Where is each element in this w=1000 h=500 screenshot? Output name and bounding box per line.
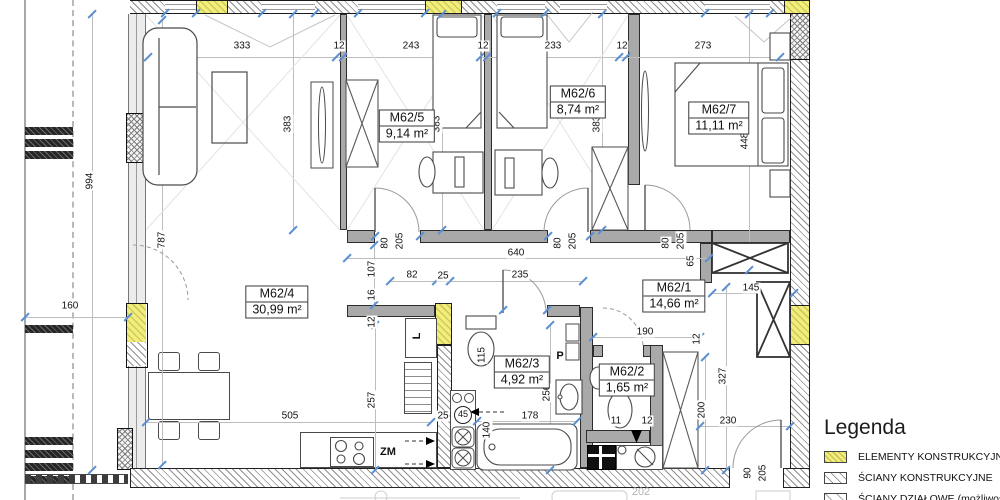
- wall-bath-wc: [580, 307, 593, 468]
- railing-bar: [25, 139, 73, 147]
- window: [358, 1, 425, 13]
- floorplan-canvas: 3331224312233122739947871603833833834488…: [0, 0, 1000, 500]
- dim-label-25: 25: [436, 271, 449, 282]
- stove: [330, 437, 374, 467]
- site-boundary-line: [24, 0, 26, 500]
- wall-bath-top: [547, 305, 580, 317]
- structural-element: [784, 0, 810, 14]
- railing-bar: [25, 437, 73, 445]
- dim-label-205: 205: [676, 232, 687, 251]
- dim-label-45: 45: [454, 406, 472, 424]
- dim-label-994: 994: [85, 172, 96, 191]
- dim-label-25: 25: [436, 411, 449, 422]
- window: [262, 1, 315, 13]
- wall-segment: [315, 1, 358, 13]
- dim-label-233: 233: [544, 41, 563, 52]
- dim-label-12: 12: [640, 416, 653, 427]
- dim-label-115: 115: [477, 346, 488, 364]
- dim-label-90: 90: [743, 466, 754, 479]
- dim-label-12: 12: [615, 41, 628, 52]
- structural-element: [196, 0, 228, 14]
- wall-segment: [127, 342, 146, 366]
- coffee-table: [212, 72, 247, 143]
- dim-label-82: 82: [405, 270, 418, 281]
- dim-label-505: 505: [281, 411, 300, 422]
- room-name: M62/2: [600, 365, 654, 381]
- dim-label-333: 333: [233, 41, 252, 52]
- legend: Legenda ELEMENTY KONSTRUKCYJNEŚCIANY KON…: [824, 416, 1000, 500]
- dim-label-640: 640: [507, 248, 526, 259]
- room-area: 14,66 m²: [643, 297, 704, 312]
- dim-label-12: 12: [476, 41, 489, 52]
- dim-tick: [776, 53, 785, 62]
- legend-swatch-diag2-icon: [824, 493, 847, 500]
- dim-label-235: 235: [511, 270, 530, 281]
- legend-title: Legenda: [824, 416, 1000, 440]
- dimension-line: [347, 258, 709, 259]
- dim-label-P: P: [555, 350, 564, 362]
- dim-label-190: 190: [636, 327, 655, 338]
- dimension-line: [92, 14, 93, 470]
- dim-label-80: 80: [553, 236, 564, 249]
- legend-item: ELEMENTY KONSTRUKCYJNE: [824, 451, 1000, 463]
- legend-swatch-yellow-icon: [824, 451, 847, 463]
- railing-bar: [25, 450, 73, 458]
- dim-label-200: 200: [697, 401, 708, 420]
- room-label-m62-4: M62/430,99 m²: [245, 286, 308, 319]
- dining-table: [148, 372, 230, 420]
- terrace-railing: [25, 474, 128, 484]
- dim-tick: [745, 266, 754, 275]
- dimension-line: [390, 281, 583, 282]
- desk-chair: [419, 157, 435, 187]
- window: [497, 1, 545, 13]
- room-area: 9,14 m²: [380, 127, 434, 142]
- legend-item: ŚCIANY KONSTRUKCYJNE: [824, 472, 1000, 484]
- dim-label-12: 12: [367, 315, 378, 328]
- dim-label-107: 107: [367, 260, 378, 279]
- dimension-line: [700, 426, 790, 427]
- wall-exterior-bottom: [783, 468, 810, 488]
- legend-label: ŚCIANY KONSTRUKCYJNE: [858, 472, 993, 484]
- legend-swatch-diag-icon: [824, 472, 847, 484]
- dim-label-140: 140: [482, 421, 493, 440]
- wall-wc-bottom: [586, 430, 650, 443]
- railing-bar: [25, 325, 73, 333]
- structural-pier: [126, 113, 148, 163]
- wall-exterior-top: [130, 0, 810, 14]
- wall-corridor: [347, 230, 375, 243]
- dim-label-205: 205: [568, 232, 579, 251]
- dim-tick: [427, 418, 436, 427]
- dim-label-65: 65: [686, 254, 697, 267]
- dim-tick: [289, 226, 298, 235]
- room-label-m62-7: M62/711,11 m²: [688, 102, 749, 135]
- room-area: 1,65 m²: [600, 381, 654, 396]
- room-label-m62-3: M62/34,92 m²: [494, 356, 550, 389]
- room-area: 8,74 m²: [551, 103, 605, 118]
- dim-label-ZM: ZM: [379, 446, 397, 458]
- dim-label-383: 383: [283, 115, 294, 134]
- wall-segment: [462, 1, 497, 13]
- dim-tick: [499, 306, 508, 315]
- railing-bar: [25, 463, 73, 471]
- room-name: M62/3: [495, 357, 549, 373]
- room-label-m62-2: M62/21,65 m²: [599, 364, 655, 397]
- room-name: M62/4: [246, 287, 307, 303]
- legend-label: ŚCIANY DZIAŁOWE (możliwość: [858, 493, 1000, 500]
- wall-kitchen: [347, 305, 435, 317]
- dining-chair: [198, 421, 220, 440]
- kitchen-cabinet: [404, 362, 432, 414]
- window: [165, 1, 196, 13]
- legend-item: ŚCIANY DZIAŁOWE (możliwość: [824, 493, 1000, 500]
- wall-corridor: [590, 230, 712, 243]
- balcony-edge-line: [72, 0, 74, 500]
- room-area: 4,92 m²: [495, 373, 549, 388]
- dim-label-787: 787: [157, 231, 168, 250]
- room-name: M62/6: [551, 87, 605, 103]
- wall-partition: [628, 14, 640, 185]
- room-name: M62/1: [643, 281, 704, 297]
- room-name: M62/5: [380, 111, 434, 127]
- dim-label-205: 205: [395, 232, 406, 251]
- washer-dryer-column: [450, 390, 476, 470]
- structural-element: [435, 303, 452, 345]
- room-area: 11,11 m²: [689, 119, 748, 134]
- room-label-m62-6: M62/68,74 m²: [550, 86, 606, 119]
- hall-closet: [712, 243, 790, 357]
- room-label-m62-5: M62/59,14 m²: [379, 110, 435, 143]
- desk-chair: [542, 158, 558, 188]
- dim-label-145: 145: [742, 283, 761, 294]
- legend-items: ELEMENTY KONSTRUKCYJNEŚCIANY KONSTRUKCYJ…: [824, 451, 1000, 500]
- dim-label-80: 80: [661, 236, 672, 249]
- dim-label-202: 202: [631, 486, 651, 498]
- window: [705, 1, 770, 13]
- structural-element: [790, 305, 810, 345]
- washbasin: [556, 380, 582, 414]
- dim-label-178: 178: [521, 411, 540, 422]
- wall-segment: [130, 1, 165, 13]
- dim-label-12: 12: [332, 41, 345, 52]
- window: [560, 1, 607, 13]
- dim-label-257: 257: [367, 391, 378, 410]
- structural-pier: [117, 428, 133, 470]
- dim-label-11: 11: [610, 416, 622, 427]
- washer-symbol: [566, 324, 579, 360]
- wall-exterior-right: [790, 13, 810, 470]
- legend-label: ELEMENTY KONSTRUKCYJNE: [858, 451, 1000, 463]
- wall-exterior-left: [128, 14, 146, 468]
- wall-closet: [700, 243, 712, 283]
- dim-label-205: 205: [758, 464, 769, 483]
- dim-label-230: 230: [719, 416, 738, 427]
- dim-label-12: 12: [692, 332, 703, 345]
- wall-segment: [607, 1, 705, 13]
- railing-bar: [25, 127, 73, 135]
- dimension-line: [146, 422, 431, 423]
- dim-label-160: 160: [61, 301, 80, 312]
- room-area: 30,99 m²: [246, 303, 307, 318]
- washing-machine: [616, 445, 663, 470]
- dim-label-80: 80: [380, 236, 391, 249]
- railing-bar: [25, 151, 73, 159]
- room-name: M62/7: [689, 103, 748, 119]
- dimension-line: [146, 57, 780, 58]
- dining-chair: [198, 352, 220, 371]
- structural-element: [127, 304, 146, 342]
- dimension-line: [25, 317, 128, 318]
- structural-pier: [790, 13, 810, 60]
- room-label-m62-1: M62/114,66 m²: [642, 280, 705, 313]
- dim-label-L: L: [411, 332, 423, 341]
- dim-tick: [579, 277, 588, 286]
- dim-label-243: 243: [402, 41, 421, 52]
- wall-wc-top: [593, 345, 603, 357]
- neighbour-unit-ghost: [340, 491, 790, 500]
- wall-segment: [228, 1, 262, 13]
- dim-label-327: 327: [718, 367, 729, 386]
- installation-shaft: [587, 445, 616, 470]
- dim-label-16: 16: [367, 288, 378, 301]
- wall-corridor: [712, 230, 790, 243]
- dim-label-273: 273: [694, 41, 713, 52]
